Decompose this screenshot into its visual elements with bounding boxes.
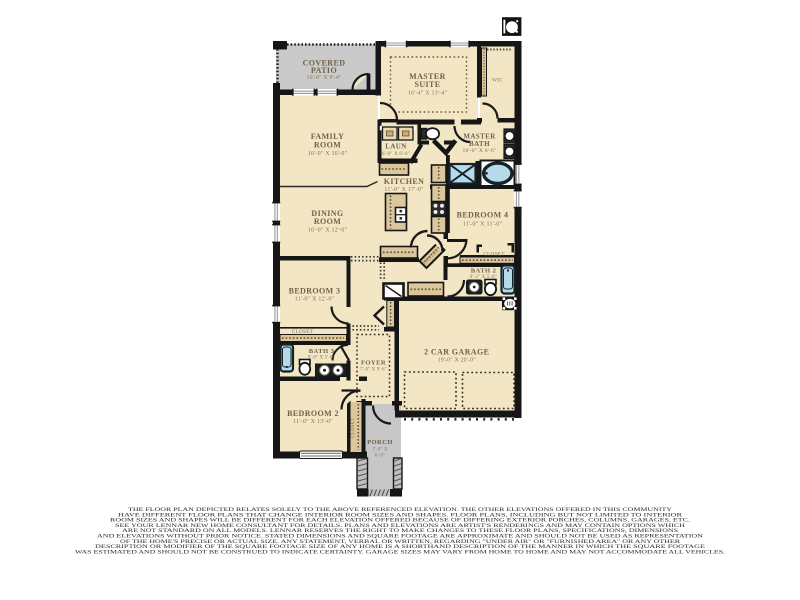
svg-text:10'-0" X 8'-6": 10'-0" X 8'-6" — [463, 148, 497, 154]
svg-text:ROOM: ROOM — [314, 141, 341, 150]
svg-text:2 CAR GARAGE: 2 CAR GARAGE — [424, 348, 489, 357]
svg-text:7'-0" X: 7'-0" X — [372, 448, 388, 453]
svg-text:19'-0" X 20'-0": 19'-0" X 20'-0" — [438, 358, 476, 364]
svg-text:11'-0" X 17'-0": 11'-0" X 17'-0" — [384, 187, 424, 193]
svg-text:8'-2" X 5'-0": 8'-2" X 5'-0" — [470, 275, 497, 280]
svg-text:BEDROOM 4: BEDROOM 4 — [457, 211, 509, 220]
svg-text:6'-0" X 6'-0": 6'-0" X 6'-0" — [382, 152, 410, 157]
svg-text:WAS ESTIMATED AND SHOULD NOT B: WAS ESTIMATED AND SHOULD NOT BE CONSTRUE… — [75, 549, 725, 555]
svg-text:16'-0" X 12'-0": 16'-0" X 12'-0" — [308, 228, 348, 234]
svg-text:BATH 2: BATH 2 — [471, 268, 497, 275]
svg-text:11'-0" X 11'-0": 11'-0" X 11'-0" — [463, 222, 503, 228]
svg-text:BEDROOM 3: BEDROOM 3 — [289, 287, 341, 296]
svg-text:FOYER: FOYER — [361, 360, 386, 367]
svg-text:BEDROOM 2: BEDROOM 2 — [287, 409, 339, 418]
svg-text:CLOSET: CLOSET — [292, 329, 314, 335]
svg-text:CLOSET: CLOSET — [483, 251, 505, 257]
svg-text:WIC: WIC — [492, 78, 503, 84]
svg-text:CLOSET: CLOSET — [351, 418, 356, 438]
svg-text:LAUN: LAUN — [385, 143, 406, 151]
svg-text:11'-0" X 12'-0": 11'-0" X 12'-0" — [295, 297, 335, 303]
svg-text:BATH 3: BATH 3 — [309, 348, 335, 355]
svg-text:16'-0" X 9'-4": 16'-0" X 9'-4" — [306, 75, 341, 81]
svg-text:16'-0" X 16'-0": 16'-0" X 16'-0" — [308, 151, 348, 157]
svg-text:PORCH: PORCH — [367, 439, 393, 446]
svg-text:16'-4" X 13'-4": 16'-4" X 13'-4" — [408, 91, 448, 97]
svg-text:8'-0" X 5'-0": 8'-0" X 5'-0" — [308, 356, 335, 361]
svg-text:PATIO: PATIO — [311, 66, 337, 75]
svg-text:BATH: BATH — [469, 140, 490, 148]
svg-text:ROOM: ROOM — [314, 217, 341, 226]
svg-text:7'-0" X 9'-6": 7'-0" X 9'-6" — [360, 368, 387, 373]
svg-text:KITCHEN: KITCHEN — [384, 177, 425, 186]
svg-text:SUITE: SUITE — [414, 80, 440, 89]
svg-text:6'-0": 6'-0" — [375, 454, 385, 459]
svg-text:11'-0" X 13'-0": 11'-0" X 13'-0" — [293, 419, 333, 425]
